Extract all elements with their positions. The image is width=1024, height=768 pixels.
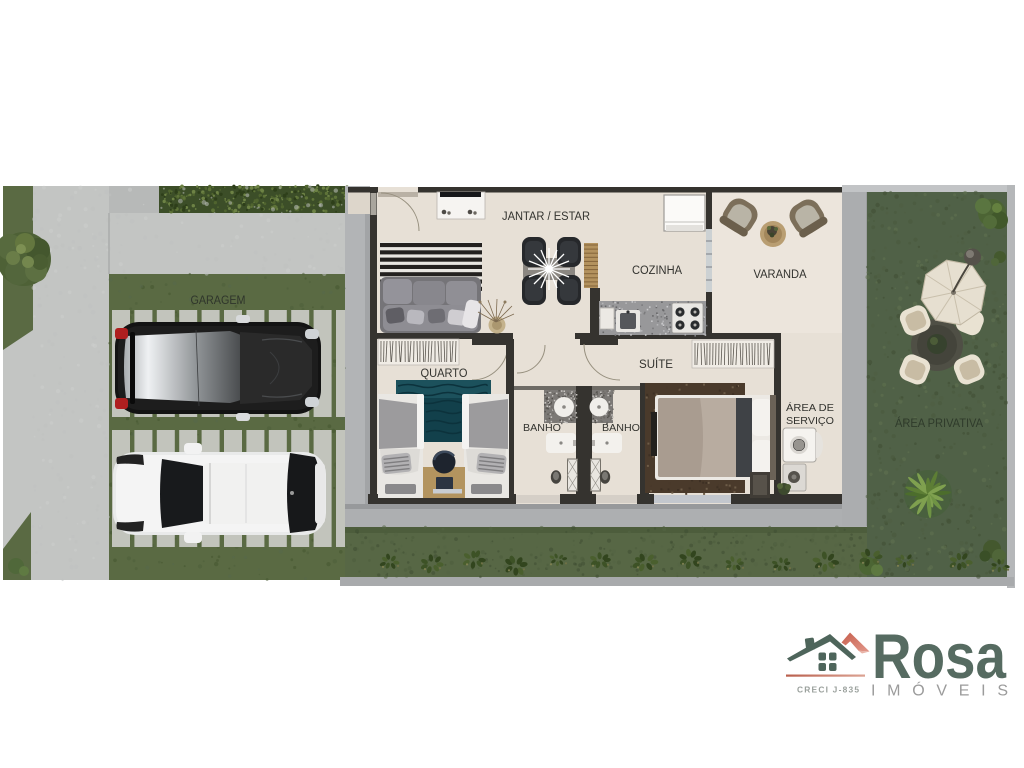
svg-text:BANHO: BANHO	[602, 422, 640, 434]
svg-text:BANHO: BANHO	[523, 422, 561, 434]
svg-text:SUÍTE: SUÍTE	[639, 358, 673, 371]
svg-text:Rosa: Rosa	[872, 622, 1007, 692]
svg-text:ÁREA DE: ÁREA DE	[786, 401, 834, 414]
svg-text:ÁREA PRIVATIVA: ÁREA PRIVATIVA	[895, 417, 983, 430]
svg-text:JANTAR / ESTAR: JANTAR / ESTAR	[502, 211, 590, 223]
svg-text:CRECI J-835: CRECI J-835	[797, 685, 859, 695]
svg-text:QUARTO: QUARTO	[421, 368, 468, 380]
svg-text:SERVIÇO: SERVIÇO	[786, 415, 834, 427]
svg-text:GARAGEM: GARAGEM	[191, 295, 246, 307]
svg-text:COZINHA: COZINHA	[632, 265, 682, 277]
svg-text:VARANDA: VARANDA	[754, 269, 807, 281]
